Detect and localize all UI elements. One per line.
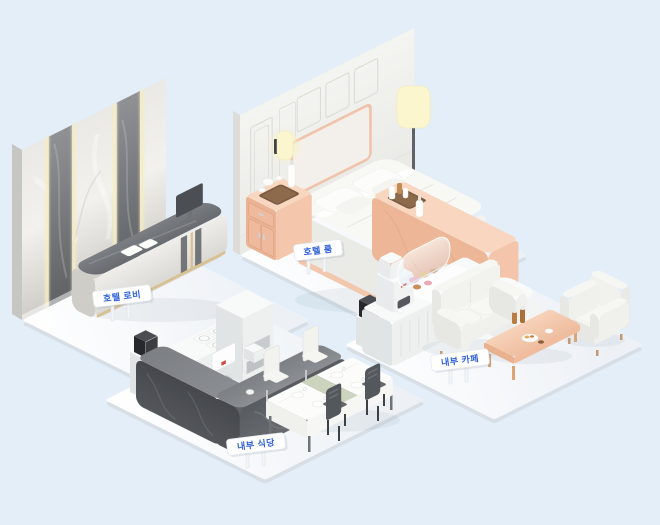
hotel-spaces-illustration: 호텔 로비 호텔 룸 내부 식당 내부 카페 <box>0 0 660 525</box>
lobby-return-wall <box>12 144 22 320</box>
room-wall-edge <box>233 111 240 255</box>
espresso-cup <box>397 309 403 313</box>
marble-band <box>49 125 72 307</box>
counter-cup <box>246 390 254 395</box>
illustration-canvas: 호텔 로비 호텔 룸 내부 식당 내부 카페 <box>0 0 660 525</box>
